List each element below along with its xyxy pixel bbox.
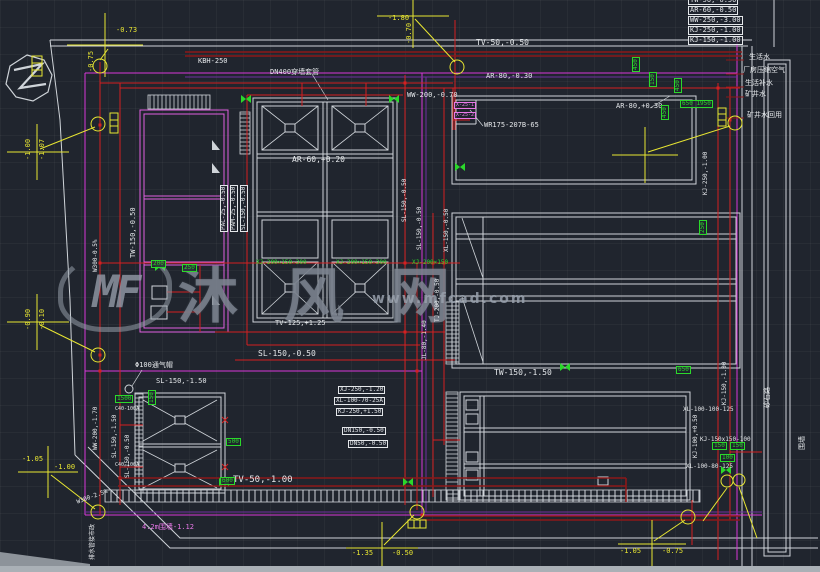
pipe-label-kj250-vert: KJ-250,-1.00 <box>703 152 709 195</box>
legend-row: TW-50,-0.50 <box>688 0 738 5</box>
dim-green: 450 <box>661 105 669 120</box>
elevation-label: -0.10 <box>39 309 46 330</box>
elevation-label: -0.75 <box>662 548 683 555</box>
fitting-label-xl2: XL-100-80-125 <box>686 464 733 470</box>
sleeve-label-dn400: DN400穿墙套管 <box>270 69 319 76</box>
pipe-label-tv50: TV-50,-0.50 <box>476 39 529 47</box>
dim-green: 150 <box>148 390 156 405</box>
dosing-label-pam: PAM-25,-0.50 <box>230 185 238 232</box>
dosing-label-pac: PAC-25,-0.50 <box>220 185 228 232</box>
channel-label: XJ-200×150-300 <box>336 260 387 266</box>
fitting-stack-label: DN50,-0.50 <box>348 440 388 448</box>
note-makeup-water: 生活补水 <box>745 80 773 87</box>
pipe-label-kbh250: KBH-250 <box>198 58 228 65</box>
equipment-tag: C40-100A <box>115 407 139 412</box>
pipe-label-ar80: AR-80,-0.30 <box>486 73 532 80</box>
pipe-label-ar60: AR-60,+0.20 <box>292 156 345 164</box>
channel-label: XJ-200×150-300 <box>256 260 307 266</box>
dim-green: 650 1950 <box>680 100 713 108</box>
pipe-label-kj150-vert: KJ-150,-1.00 <box>722 362 728 405</box>
pipe-label-sl150-b: SL-150,-1.50 <box>156 378 207 385</box>
legend-row: WW-250,-3.00 <box>688 16 743 25</box>
elevation-label: -1.35 <box>352 550 373 557</box>
fitting-stack-label: XJ-250,-1.20 <box>338 386 385 394</box>
note-domestic-water: 生活水 <box>749 54 770 61</box>
pipe-label-tw150-vert: TW-150,-0.50 <box>130 207 137 258</box>
road-label: 砂石路 <box>764 387 771 408</box>
fitting-stack-label: XL-100-70-25A <box>334 397 385 405</box>
pipe-label-sl150: SL-150,-0.50 <box>258 350 316 358</box>
legend-row: KJ-250,-1.00 <box>688 26 743 35</box>
dim-green: 450 <box>674 78 682 93</box>
fitting-stack-label: KJ-250,+1.50 <box>336 408 383 416</box>
fitting-label-xl1: XL-100-100-125 <box>683 407 734 413</box>
dim-green: 600 <box>220 477 235 485</box>
elevation-label: -1.00 <box>54 464 75 471</box>
elevation-label: -0.75 <box>88 51 95 72</box>
dim-green: 650 <box>676 366 691 374</box>
pipe-label-kj100: KJ-100,+0.50 <box>693 415 699 458</box>
pipe-label-mid1: SL-150,-0.50 <box>402 179 408 222</box>
elevation-label: -0.73 <box>116 27 137 34</box>
vent-cap-label: Φ100通气帽 <box>135 362 173 369</box>
pipe-label-ww200: WW-200,-0.70 <box>407 92 458 99</box>
wall-label: 围墙 <box>799 436 806 450</box>
elevation-label: -1.05 <box>620 548 641 555</box>
bottom-strip <box>0 566 820 572</box>
dim-green: 200 <box>151 260 166 268</box>
pipe-label-ww200-vert: WW-200,-1.70 <box>93 407 99 450</box>
note-mine-water-reuse: 矿井水回用 <box>747 112 782 119</box>
fitting-stack-label: DN150,-0.50 <box>342 427 386 435</box>
pipe-label-mid2: SL-150,-0.50 <box>417 207 423 250</box>
small-magenta-label: X-25-1 <box>454 102 476 109</box>
equipment-tag: C40-100A <box>115 463 139 468</box>
dim-green: 250 <box>699 220 707 235</box>
pipe-label-mid3: XL-150,-0.50 <box>444 209 450 252</box>
dim-green: 150 <box>730 442 745 450</box>
dim-green: 1500 <box>115 395 133 403</box>
pipe-label-ar80-plus: AR-80,+0.30 <box>616 103 662 110</box>
cad-drawing-viewport[interactable]: MF 沐风网 www.mfcad.com TV-50,-0.50AR-80,-0… <box>0 0 820 572</box>
elevation-label: -1.80 <box>388 15 409 22</box>
elevation-label: -0.50 <box>392 550 413 557</box>
dim-green: 100 <box>720 454 735 462</box>
elevation-label: -1.00 <box>25 139 32 160</box>
pipe-label-sl150-vert: SL-150,-1.50 <box>112 415 118 458</box>
elevation-label: -1.07 <box>39 139 46 160</box>
pipe-label-tv50-bottom: TV-50,-1.00 <box>233 476 293 485</box>
sewer-slope-label: W300-0.5% <box>93 239 99 272</box>
dim-green: 150 <box>649 72 657 87</box>
small-magenta-label: X-25-2 <box>454 112 476 119</box>
elevation-label: -0.70 <box>406 23 413 44</box>
pipe-label-tw150: TW-150,-1.50 <box>494 369 552 377</box>
elevation-label: -1.05 <box>22 456 43 463</box>
note-mine-water: 矿井水 <box>745 91 766 98</box>
pipe-label-tv125: TV-125,+1.25 <box>275 320 326 327</box>
elevation-label: -0.90 <box>25 309 32 330</box>
pipe-label-mid4: TJ-200,-0.50 <box>435 279 441 322</box>
equipment-label-wr175: WR175-207B-65 <box>484 122 539 129</box>
dim-green: 450 <box>632 57 640 72</box>
dim-green: 500 <box>226 438 241 446</box>
dosing-label-sl: SL-150,-0.50 <box>240 185 248 232</box>
pipe-label-sl150-vert2: SL-150,-0.50 <box>125 435 131 478</box>
note-compressed-air: 厂房压缩空气 <box>743 67 785 74</box>
dim-green: 250 <box>182 264 197 272</box>
dim-green: 150 <box>712 442 727 450</box>
legend-row: AR-60,-0.50 <box>688 6 738 15</box>
annotation-layer: TV-50,-0.50AR-80,-0.30WW-200,-0.70AR-80,… <box>0 0 820 572</box>
sewer-slope-label2: W300-2.5% <box>76 489 109 506</box>
fence-label: 4.2m围墙-1.12 <box>142 524 194 531</box>
legend-row: KJ-150,-1.00 <box>688 36 743 45</box>
pipe-label-mid5: JL-80,-1.40 <box>422 320 428 360</box>
channel-label: XJ-200×150 <box>412 260 448 266</box>
drain-to-municipal-note: 排水管接市政 <box>90 524 96 560</box>
